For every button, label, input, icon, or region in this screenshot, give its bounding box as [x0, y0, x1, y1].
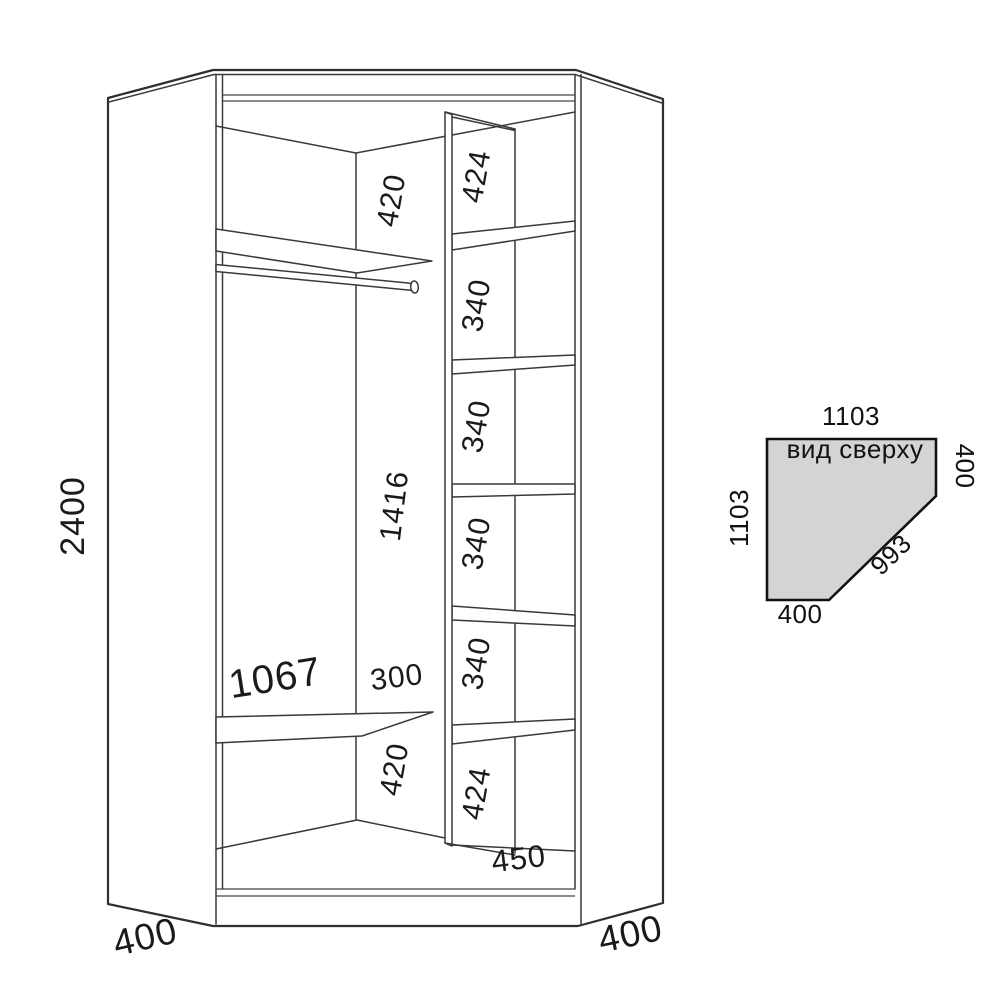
shelf — [452, 484, 575, 497]
tv-dim-top: 1103 — [822, 401, 880, 431]
dim-lower-shelf-gap: 300 — [368, 658, 425, 697]
dim-overall-height: 2400 — [54, 476, 92, 556]
divider-front-edge — [445, 112, 452, 846]
drawing-canvas: 2400 420 1416 420 424 340 340 340 340 42… — [0, 0, 1000, 1000]
tv-dim-right: 400 — [950, 444, 980, 489]
dim-base-left: 400 — [109, 910, 181, 965]
top-view: вид сверху 1103 400 1103 993 400 — [724, 401, 980, 629]
wardrobe-technical-drawing: 2400 420 1416 420 424 340 340 340 340 42… — [0, 0, 1000, 1000]
dim-column-width: 450 — [489, 838, 548, 879]
tv-dim-left: 1103 — [724, 489, 754, 547]
top-view-title: вид сверху — [787, 434, 924, 464]
tv-dim-bottom: 400 — [778, 599, 823, 629]
hanging-rod-end-cap — [410, 281, 419, 294]
